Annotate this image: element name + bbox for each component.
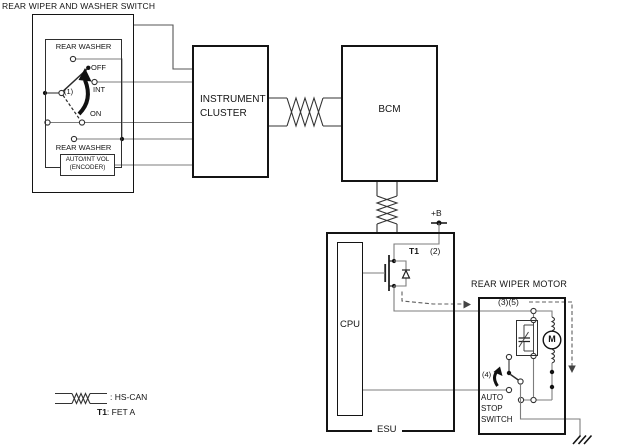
can-braid-line1 xyxy=(287,98,323,126)
auto-stop-label-line2: STOP xyxy=(481,405,503,414)
wire-switch-to-cluster xyxy=(134,25,192,69)
can-stub xyxy=(269,98,341,126)
rotary-ref-label: (1) xyxy=(64,88,73,96)
auto-stop-label-line3: SWITCH xyxy=(481,416,513,425)
plus-b-label: +B xyxy=(431,209,442,218)
diagram-title: REAR WIPER AND WASHER SWITCH xyxy=(2,2,155,11)
motor-m-label: M xyxy=(543,335,561,345)
pin-2-label: (2) xyxy=(430,247,440,256)
instrument-cluster-label-line1: INSTRUMENT xyxy=(200,94,266,105)
pin-3-5-label: (3)(5) xyxy=(498,298,519,307)
flow-arrowhead-right xyxy=(464,301,472,309)
on-label: ON xyxy=(90,110,101,118)
cpu-label: CPU xyxy=(337,320,363,330)
rear-washer-bottom-label: REAR WASHER xyxy=(45,144,122,152)
can-braid-line2 xyxy=(377,196,397,224)
encoder-label-line2: (ENCODER) xyxy=(60,165,115,172)
t1-legend-bold: T1 xyxy=(97,407,107,417)
noise-suppressor-box xyxy=(516,320,538,356)
t1-label: T1 xyxy=(409,247,419,256)
int-label: INT xyxy=(93,86,105,94)
encoder-label-line1: AUTO/INT VOL xyxy=(60,157,115,164)
can-bus-bcm-esu xyxy=(377,182,397,232)
can-braid-line1 xyxy=(377,196,397,224)
rear-wiper-motor-title: REAR WIPER MOTOR xyxy=(471,280,567,290)
hs-can-legend-label: : HS-CAN xyxy=(110,393,147,402)
ground-icon xyxy=(573,436,592,445)
pin-4-label: (4) xyxy=(482,371,491,379)
rear-washer-top-label: REAR WASHER xyxy=(45,43,122,51)
flow-arrowhead-down xyxy=(568,366,576,374)
wiring-diagram: REAR WIPER AND WASHER SWITCH REAR WASHER… xyxy=(0,0,638,446)
legend-stubs xyxy=(55,394,107,404)
off-label: OFF xyxy=(91,64,106,72)
legend-braid-line2 xyxy=(72,394,90,404)
can-bus-cluster-bcm xyxy=(269,98,341,126)
t1-legend-label: T1: FET A xyxy=(97,408,135,417)
can-braid-line2 xyxy=(287,98,323,126)
t1-legend-desc: : FET A xyxy=(107,407,135,417)
auto-stop-label-line1: AUTO xyxy=(481,394,503,403)
esu-label: ESU xyxy=(372,425,402,435)
instrument-cluster-label-line2: CLUSTER xyxy=(200,108,247,119)
bcm-label: BCM xyxy=(341,104,438,115)
hs-can-legend-icon xyxy=(55,394,107,404)
